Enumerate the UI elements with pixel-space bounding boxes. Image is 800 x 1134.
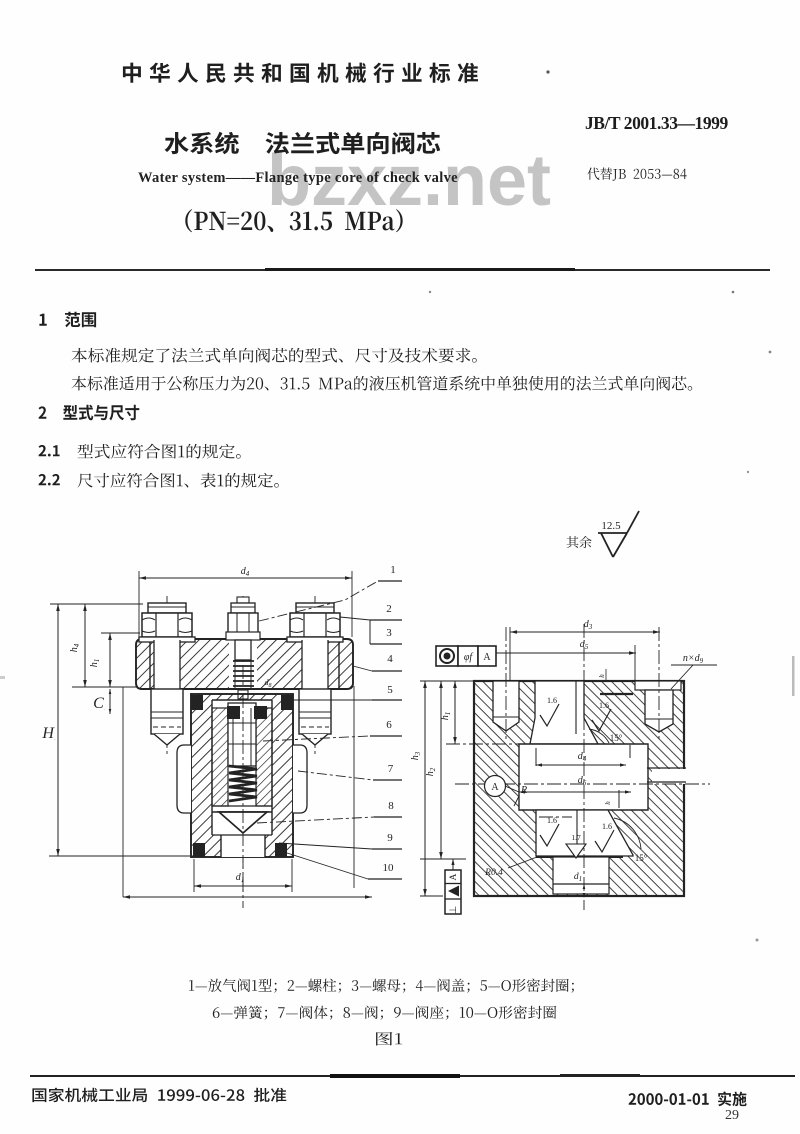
svg-text:h1: h1	[89, 659, 101, 668]
svg-text:1.7: 1.7	[571, 833, 581, 842]
svg-text:C10: C10	[93, 695, 105, 712]
svg-text:d3: d3	[584, 619, 593, 631]
svg-text:d5: d5	[580, 639, 589, 651]
svg-text:10: 10	[383, 862, 395, 874]
svg-text:n×d9: n×d9	[683, 653, 704, 665]
svg-text:h3: h3	[410, 751, 422, 760]
svg-text:5: 5	[387, 684, 393, 696]
svg-text:A: A	[449, 873, 459, 880]
svg-text:12.5: 12.5	[601, 520, 621, 532]
svg-text:h4: h4	[69, 643, 81, 652]
svg-text:3: 3	[386, 627, 392, 639]
svg-text:d4: d4	[241, 566, 250, 578]
svg-text:h: h	[604, 801, 612, 805]
svg-text:h: h	[598, 674, 606, 678]
svg-text:2: 2	[386, 603, 392, 615]
svg-text:H10.5: H10.5	[41, 725, 56, 742]
svg-text:9: 9	[387, 832, 393, 844]
svg-text:h2: h2	[425, 767, 437, 776]
svg-text:1.6: 1.6	[547, 816, 557, 825]
svg-text:1: 1	[390, 564, 396, 576]
svg-text:A: A	[491, 782, 499, 793]
svg-text:φf: φf	[464, 652, 474, 663]
svg-text:1.6: 1.6	[547, 696, 557, 705]
svg-text:h1: h1	[440, 712, 452, 721]
svg-text:A: A	[483, 652, 491, 663]
svg-text:1.6: 1.6	[599, 701, 609, 710]
svg-text:R: R	[520, 785, 527, 796]
svg-text:15°: 15°	[610, 733, 623, 743]
svg-text:8: 8	[388, 800, 394, 812]
svg-text:6: 6	[386, 719, 392, 731]
svg-text:4: 4	[387, 653, 393, 665]
svg-text:R0.4: R0.4	[484, 868, 503, 878]
svg-text:15°: 15°	[635, 853, 648, 863]
svg-text:⊥: ⊥	[449, 906, 459, 914]
svg-text:7: 7	[388, 763, 394, 775]
svg-text:1.6: 1.6	[602, 822, 612, 831]
